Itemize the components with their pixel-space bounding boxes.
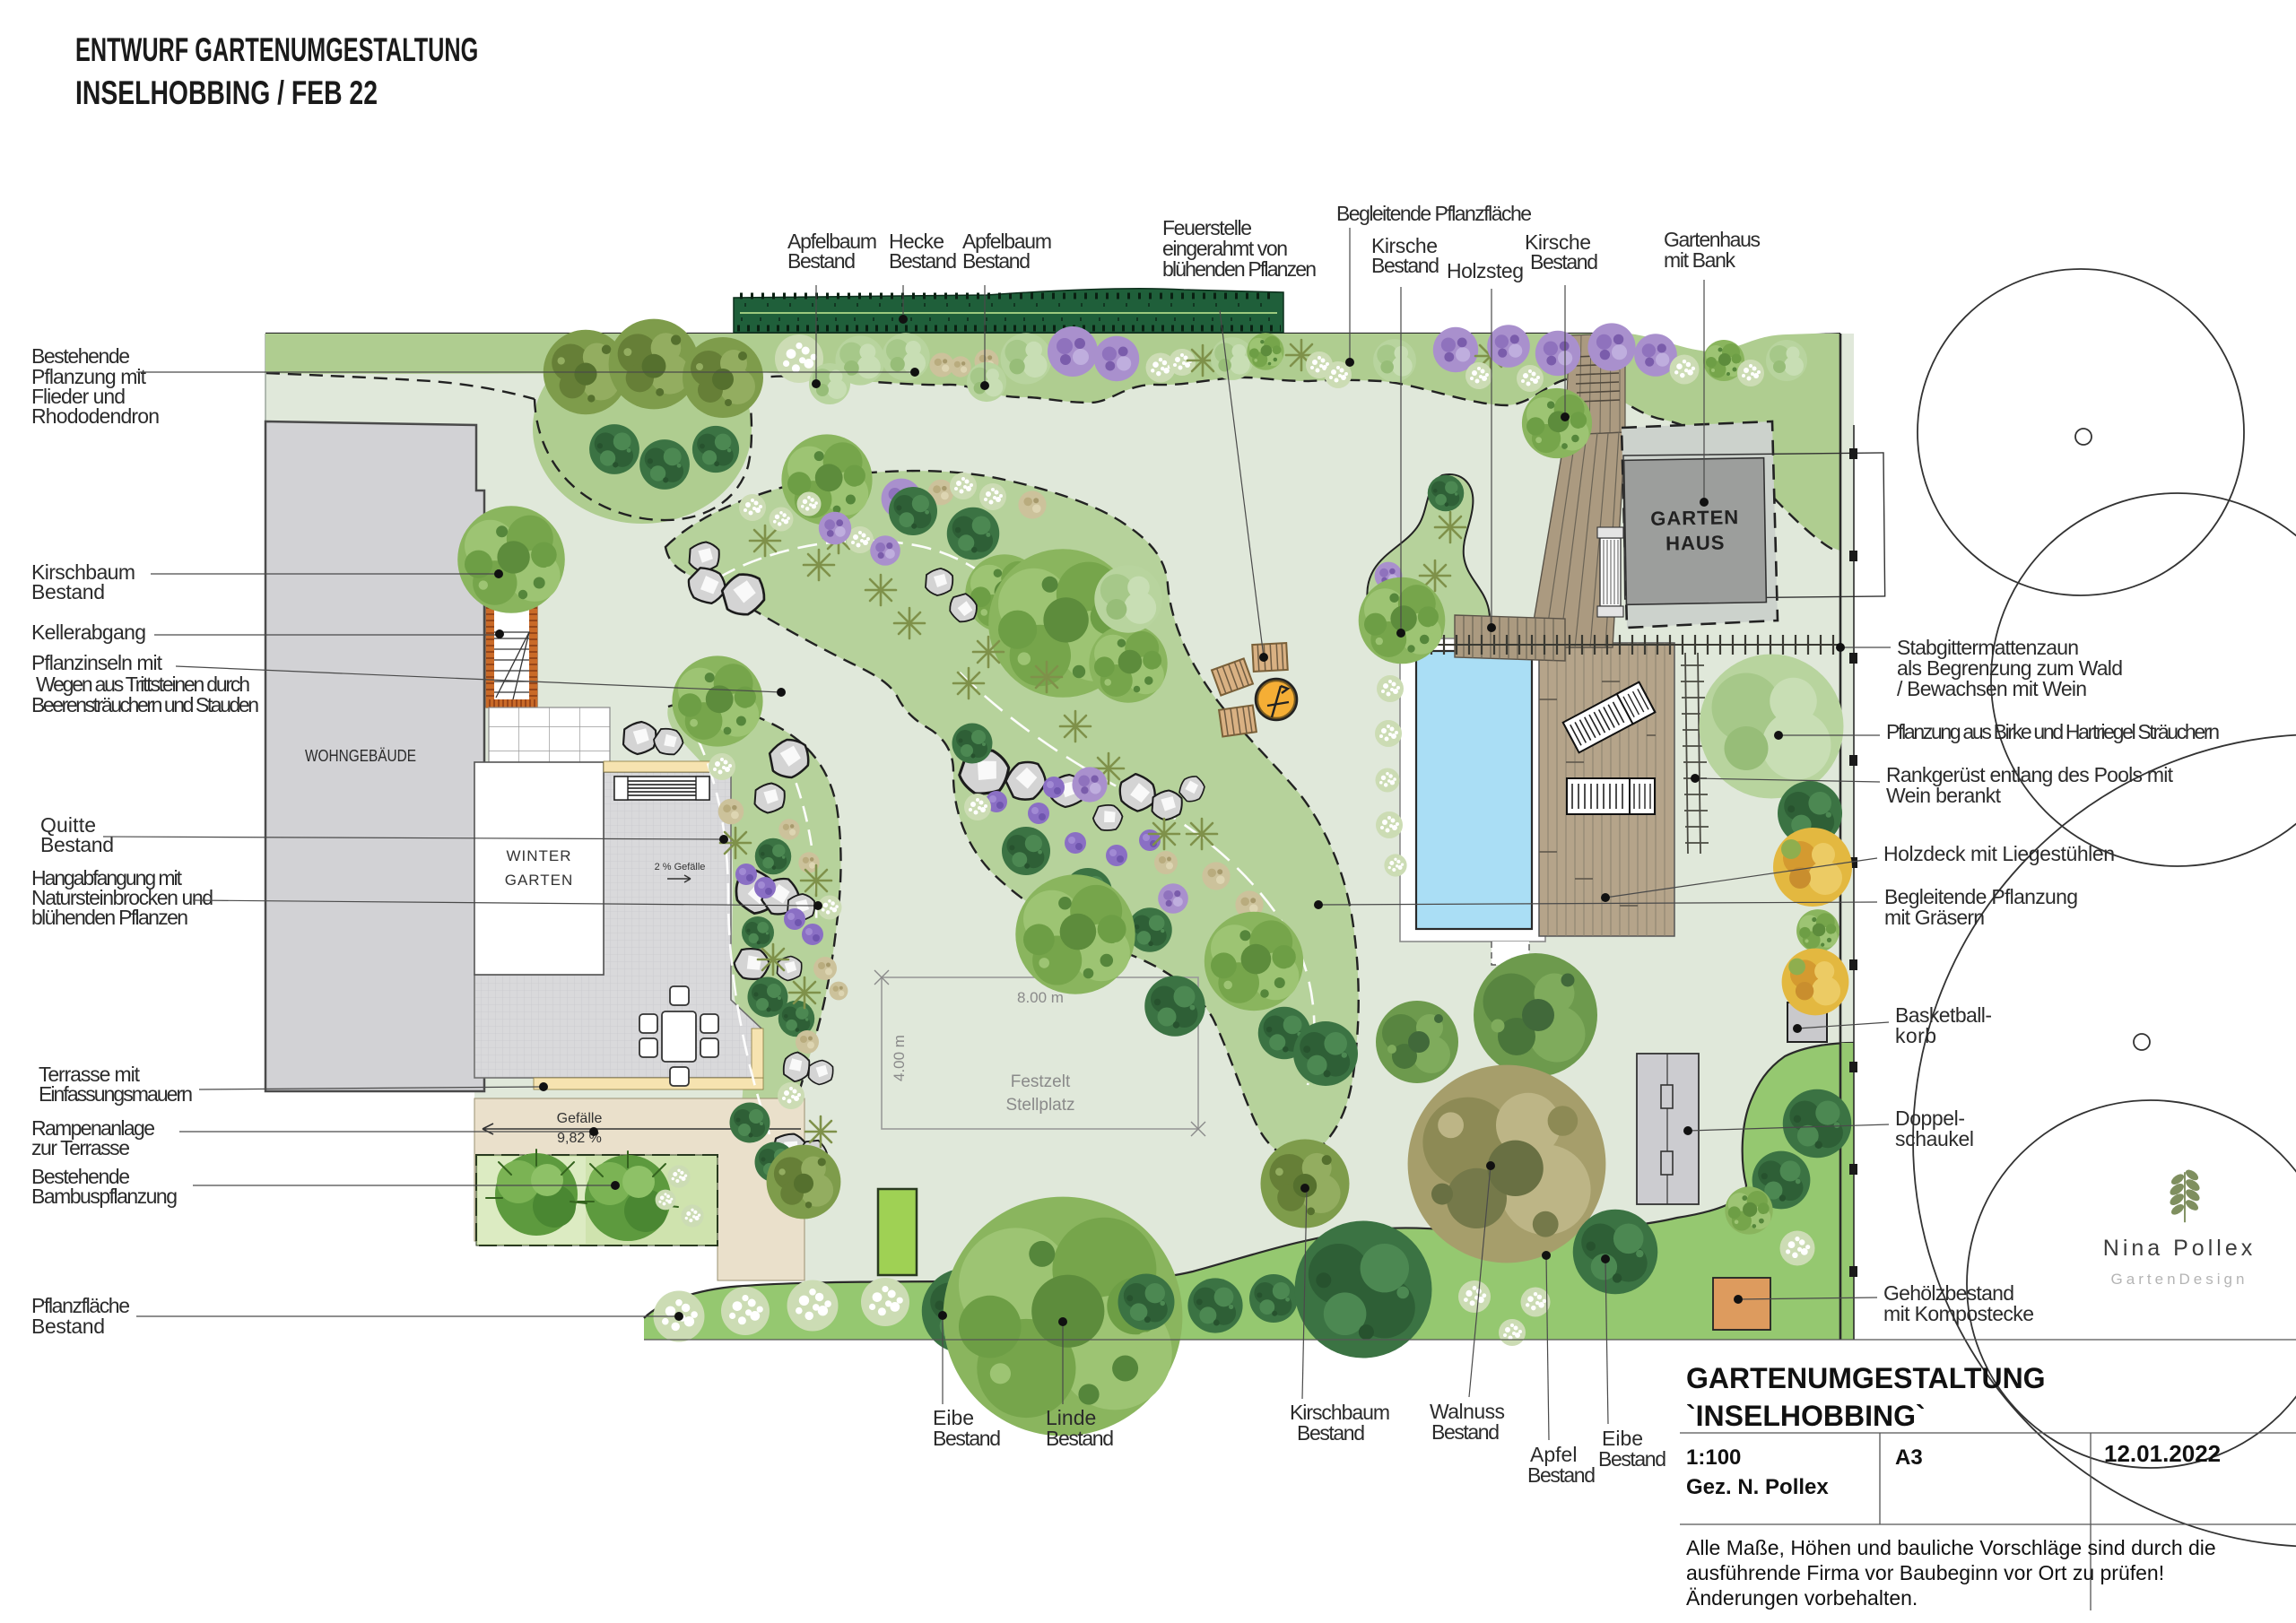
svg-text:mit Gräsern: mit Gräsern xyxy=(1884,906,1985,929)
svg-text:Stellplatz: Stellplatz xyxy=(1005,1096,1074,1115)
svg-text:schaukel: schaukel xyxy=(1895,1127,1974,1150)
svg-text:Bestand: Bestand xyxy=(1371,254,1439,277)
svg-text:Gez. N. Pollex: Gez. N. Pollex xyxy=(1686,1475,1829,1499)
svg-text:Einfassungsmauern: Einfassungsmauern xyxy=(39,1082,193,1106)
svg-text:Begleitende Pflanzfläche: Begleitende Pflanzfläche xyxy=(1336,202,1532,225)
svg-text:Bestand: Bestand xyxy=(40,833,114,856)
svg-text:Rhododendron: Rhododendron xyxy=(31,404,160,428)
svg-text:Bestand: Bestand xyxy=(787,249,856,273)
svg-text:/ Bewachsen mit Wein: / Bewachsen mit Wein xyxy=(1897,677,2087,700)
svg-text:GARTEN: GARTEN xyxy=(505,872,574,889)
svg-text:Bestand: Bestand xyxy=(1530,250,1598,273)
svg-text:korb: korb xyxy=(1895,1024,1936,1047)
svg-text:WINTER: WINTER xyxy=(506,847,571,864)
svg-text:Änderungen vorbehalten.: Änderungen vorbehalten. xyxy=(1686,1586,1918,1610)
svg-text:Bestand: Bestand xyxy=(1527,1463,1596,1487)
svg-text:Bestand: Bestand xyxy=(962,249,1031,273)
svg-text:Holzsteg: Holzsteg xyxy=(1447,259,1524,282)
svg-text:Holzdeck mit Liegestühlen: Holzdeck mit Liegestühlen xyxy=(1883,842,2115,865)
svg-text:Gefälle: Gefälle xyxy=(557,1111,603,1126)
svg-text:Bestand: Bestand xyxy=(1046,1427,1114,1450)
svg-text:Bestand: Bestand xyxy=(31,1315,105,1338)
svg-text:GartenDesign: GartenDesign xyxy=(2111,1271,2248,1288)
svg-text:8.00 m: 8.00 m xyxy=(1017,989,1064,1006)
svg-text:HAUS: HAUS xyxy=(1665,531,1726,554)
svg-text:ausführende Firma vor Baubegin: ausführende Firma vor Baubeginn vor Ort … xyxy=(1686,1561,2164,1584)
svg-text:12.01.2022: 12.01.2022 xyxy=(2104,1440,2221,1467)
svg-text:Bestand: Bestand xyxy=(1598,1447,1666,1471)
svg-text:Bestand: Bestand xyxy=(31,580,105,603)
svg-text:Bestand: Bestand xyxy=(1431,1420,1500,1444)
svg-text:WOHNGEBÄUDE: WOHNGEBÄUDE xyxy=(305,747,416,765)
svg-text:Festzelt: Festzelt xyxy=(1011,1072,1071,1091)
svg-text:blühenden Pflanzen: blühenden Pflanzen xyxy=(31,906,188,929)
svg-text:A3: A3 xyxy=(1895,1445,1923,1470)
svg-text:zur Terrasse: zur Terrasse xyxy=(31,1136,130,1159)
svg-text:GARTEN: GARTEN xyxy=(1650,506,1739,530)
svg-text:4.00 m: 4.00 m xyxy=(891,1035,908,1081)
svg-text:blühenden Pflanzen: blühenden Pflanzen xyxy=(1162,257,1317,281)
svg-text:`INSELHOBBING`: `INSELHOBBING` xyxy=(1686,1400,1926,1432)
svg-text:mit Bank: mit Bank xyxy=(1664,248,1736,272)
svg-text:2 % Gefälle: 2 % Gefälle xyxy=(655,862,706,872)
svg-text:Wein berankt: Wein berankt xyxy=(1886,784,2002,807)
svg-text:GARTENUMGESTALTUNG: GARTENUMGESTALTUNG xyxy=(1686,1362,2046,1394)
svg-text:Bestand: Bestand xyxy=(1297,1421,1365,1445)
svg-text:Bestand: Bestand xyxy=(889,249,957,273)
svg-text:Pflanzinseln mit: Pflanzinseln mit xyxy=(31,651,163,674)
svg-text:Beerensträuchern und Stauden: Beerensträuchern und Stauden xyxy=(31,693,259,716)
svg-text:Kellerabgang: Kellerabgang xyxy=(31,621,146,644)
svg-text:mit Kompostecke: mit Kompostecke xyxy=(1883,1302,2034,1325)
svg-text:1:100: 1:100 xyxy=(1686,1445,1741,1470)
svg-text:Pflanzung aus Birke und Hartri: Pflanzung aus Birke und Hartriegel Sträu… xyxy=(1886,720,2220,743)
svg-text:Bambuspflanzung: Bambuspflanzung xyxy=(31,1185,178,1208)
svg-text:Nina Pollex: Nina Pollex xyxy=(2103,1236,2256,1261)
svg-text:Bestand: Bestand xyxy=(933,1427,1001,1450)
svg-text:Alle Maße, Höhen und bauliche: Alle Maße, Höhen und bauliche Vorschläge… xyxy=(1686,1536,2216,1559)
svg-text:INSELHOBBING / FEB 22: INSELHOBBING / FEB 22 xyxy=(75,75,378,112)
svg-text:ENTWURF GARTENUMGESTALTUNG: ENTWURF GARTENUMGESTALTUNG xyxy=(75,32,478,69)
